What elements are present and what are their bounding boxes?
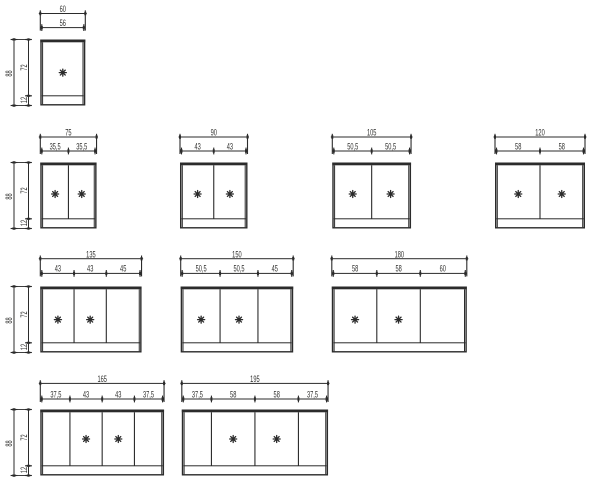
svg-text:88: 88 — [4, 193, 15, 199]
svg-text:43: 43 — [83, 389, 89, 400]
svg-text:50,5: 50,5 — [347, 141, 358, 152]
svg-text:37,5: 37,5 — [192, 389, 203, 400]
svg-text:56: 56 — [60, 18, 66, 29]
svg-text:37,5: 37,5 — [50, 389, 61, 400]
svg-text:43: 43 — [87, 263, 93, 274]
svg-text:90: 90 — [211, 127, 217, 138]
svg-text:37,5: 37,5 — [307, 389, 318, 400]
svg-text:88: 88 — [4, 317, 15, 323]
svg-text:58: 58 — [395, 263, 401, 274]
svg-text:12: 12 — [19, 97, 30, 103]
svg-text:72: 72 — [19, 311, 30, 317]
svg-text:105: 105 — [367, 127, 376, 138]
svg-text:12: 12 — [19, 344, 30, 350]
svg-text:58: 58 — [559, 141, 565, 152]
svg-text:35,5: 35,5 — [76, 141, 87, 152]
svg-text:72: 72 — [19, 64, 30, 70]
svg-text:120: 120 — [535, 127, 544, 138]
svg-text:180: 180 — [395, 249, 404, 260]
svg-text:45: 45 — [272, 263, 278, 274]
svg-text:50,5: 50,5 — [196, 263, 207, 274]
svg-text:35,5: 35,5 — [50, 141, 61, 152]
svg-text:50,5: 50,5 — [233, 263, 244, 274]
svg-text:43: 43 — [194, 141, 200, 152]
svg-text:135: 135 — [86, 249, 95, 260]
svg-text:43: 43 — [115, 389, 121, 400]
svg-text:150: 150 — [232, 249, 241, 260]
svg-text:195: 195 — [250, 374, 259, 385]
svg-text:72: 72 — [19, 187, 30, 193]
svg-text:60: 60 — [440, 263, 446, 274]
svg-text:58: 58 — [352, 263, 358, 274]
svg-text:72: 72 — [19, 434, 30, 440]
svg-text:58: 58 — [515, 141, 521, 152]
svg-text:12: 12 — [19, 467, 30, 473]
svg-text:43: 43 — [55, 263, 61, 274]
svg-text:88: 88 — [4, 440, 15, 446]
svg-text:75: 75 — [65, 127, 71, 138]
svg-text:88: 88 — [4, 70, 15, 76]
svg-text:165: 165 — [97, 374, 106, 385]
svg-text:58: 58 — [274, 389, 280, 400]
svg-text:12: 12 — [19, 220, 30, 226]
svg-text:58: 58 — [230, 389, 236, 400]
svg-text:50,5: 50,5 — [385, 141, 396, 152]
svg-text:43: 43 — [227, 141, 233, 152]
svg-text:60: 60 — [60, 4, 66, 15]
svg-text:45: 45 — [120, 263, 126, 274]
svg-text:37,5: 37,5 — [143, 389, 154, 400]
